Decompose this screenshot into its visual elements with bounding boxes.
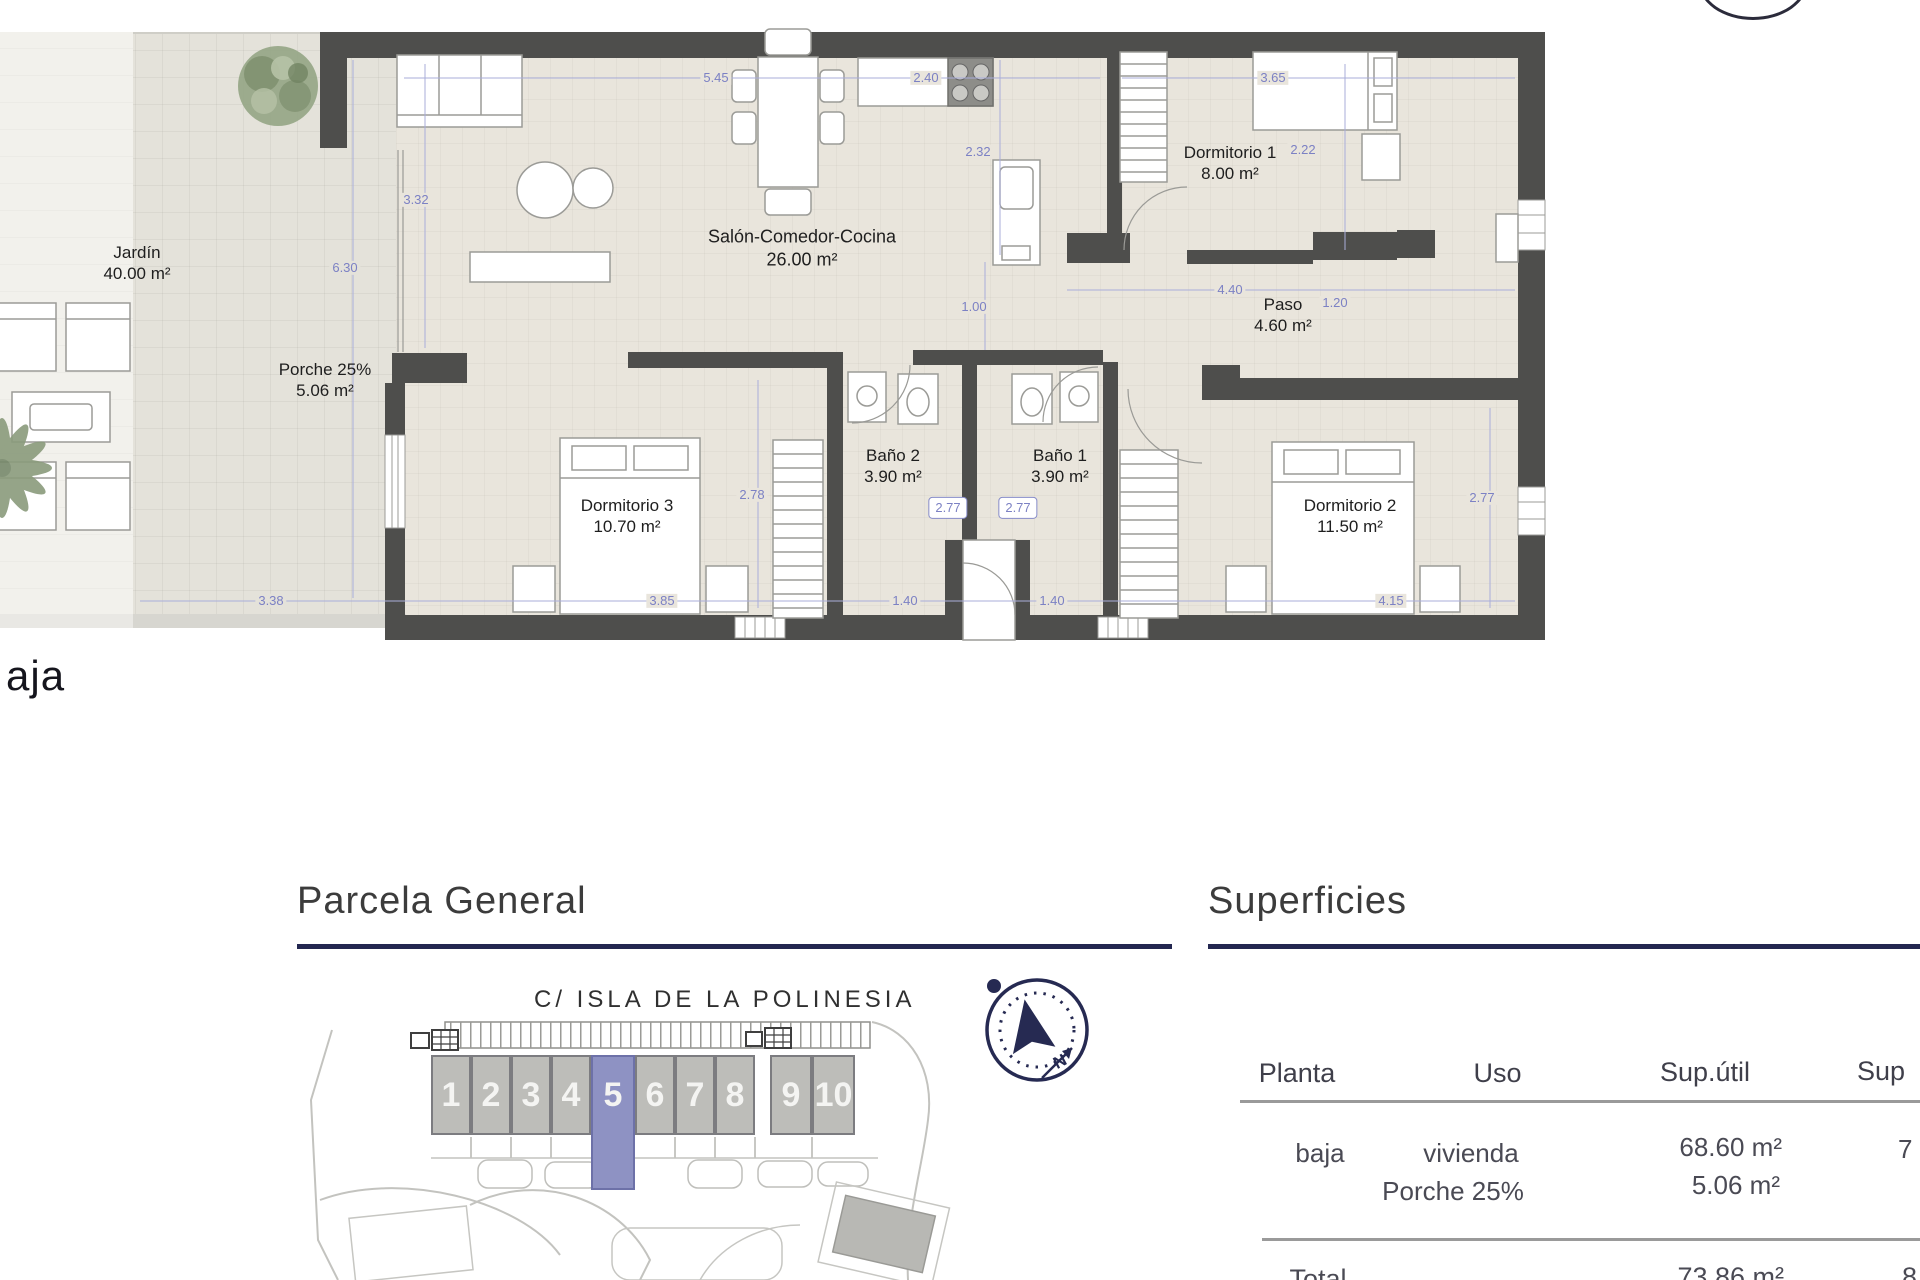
room-name: Dormitorio 1 <box>1184 143 1277 162</box>
col-header-planta: Planta <box>1240 1058 1354 1089</box>
dim-salon-depth: 3.32 <box>400 193 431 207</box>
dim-hall-width: 1.00 <box>958 300 989 314</box>
dim-dorm3-width: 3.85 <box>646 594 677 608</box>
driveways-cars <box>431 1137 878 1188</box>
dim-paso-width: 4.40 <box>1214 283 1245 297</box>
compass-icon <box>987 979 1087 1080</box>
room-label-salon: Salón-Comedor-Cocina 26.00 m² <box>708 226 896 271</box>
table-header-rule <box>1240 1100 1920 1103</box>
cell-planta-baja: baja <box>1270 1138 1370 1169</box>
dim-dorm1-depth: 2.22 <box>1287 143 1318 157</box>
room-area: 26.00 m² <box>766 249 837 269</box>
room-area: 8.00 m² <box>1201 164 1259 183</box>
room-name: Jardín <box>113 243 160 262</box>
room-area: 3.90 m² <box>864 467 922 486</box>
room-label-bano1: Baño 1 3.90 m² <box>1031 445 1089 488</box>
cell-total-label: Total <box>1268 1264 1368 1280</box>
room-name: Dormitorio 2 <box>1304 496 1397 515</box>
cell-total-sup-right-clipped: 8 <box>1902 1262 1920 1280</box>
floorplan-sheet: Jardín 40.00 m² Porche 25% 5.06 m² Salón… <box>0 0 1920 1280</box>
room-label-dormitorio3: Dormitorio 3 10.70 m² <box>581 495 674 538</box>
room-name: Porche 25% <box>279 360 372 379</box>
room-name: Baño 2 <box>866 446 920 465</box>
site-unit-3: 3 <box>511 1055 551 1135</box>
room-name: Dormitorio 3 <box>581 496 674 515</box>
superficies-rule <box>1208 944 1920 949</box>
room-area: 10.70 m² <box>593 517 660 536</box>
superficies-title: Superficies <box>1208 880 1407 923</box>
dim-dorm2-width: 4.15 <box>1375 594 1406 608</box>
cell-sup-right-clipped: 7 <box>1898 1134 1920 1165</box>
dim-bano1-width: 1.40 <box>1036 594 1067 608</box>
dim-dorm2-depth: 2.77 <box>1466 491 1497 505</box>
cell-uso-vivienda: vivienda <box>1398 1138 1544 1169</box>
cell-sup-util-porche: 5.06 m² <box>1632 1170 1780 1201</box>
room-area: 5.06 m² <box>296 381 354 400</box>
site-unit-2: 2 <box>471 1055 511 1135</box>
site-unit-9: 9 <box>770 1055 812 1135</box>
site-unit-10: 10 <box>812 1055 855 1135</box>
dim-kitchen-depth: 2.32 <box>962 145 993 159</box>
room-name: Salón-Comedor-Cocina <box>708 227 896 247</box>
room-label-paso: Paso 4.60 m² <box>1254 294 1312 337</box>
dim-bano2-width: 1.40 <box>889 594 920 608</box>
room-area: 11.50 m² <box>1317 517 1383 536</box>
dim-porch-length: 6.30 <box>329 261 360 275</box>
garden-furniture <box>0 303 406 628</box>
dim-bano2-box: 2.77 <box>928 497 967 519</box>
room-name: Baño 1 <box>1033 446 1087 465</box>
site-unit-7: 7 <box>675 1055 715 1135</box>
table-mid-rule <box>1262 1238 1920 1241</box>
room-label-bano2: Baño 2 3.90 m² <box>864 445 922 488</box>
room-area: 3.90 m² <box>1031 467 1089 486</box>
tree-icon <box>238 46 318 126</box>
col-header-uso: Uso <box>1450 1058 1545 1089</box>
floor-name-label: aja <box>6 652 65 700</box>
dim-garden-bottom: 3.38 <box>255 594 286 608</box>
street-parking-hatch <box>445 1022 870 1048</box>
dim-kitchen-width: 2.40 <box>910 71 941 85</box>
site-unit-1: 1 <box>431 1055 471 1135</box>
site-lower-shapes <box>349 1182 950 1280</box>
dim-salon-width: 5.45 <box>700 71 731 85</box>
dim-dorm1-width: 3.65 <box>1257 71 1288 85</box>
cell-total-sup-util: 73.86 m² <box>1632 1262 1784 1280</box>
site-unit-4: 4 <box>551 1055 591 1135</box>
room-label-dormitorio1: Dormitorio 1 8.00 m² <box>1184 142 1277 185</box>
room-label-porche: Porche 25% 5.06 m² <box>279 359 372 402</box>
site-unit-6: 6 <box>635 1055 675 1135</box>
cell-sup-util-vivienda: 68.60 m² <box>1632 1132 1782 1163</box>
dim-bano1-box: 2.77 <box>998 497 1037 519</box>
room-name: Paso <box>1264 295 1303 314</box>
room-label-jardin: Jardín 40.00 m² <box>103 242 170 285</box>
dim-dorm3-depth: 2.78 <box>736 488 767 502</box>
col-header-sup-util: Sup.útil <box>1630 1057 1780 1088</box>
room-area: 4.60 m² <box>1254 316 1312 335</box>
room-area: 40.00 m² <box>103 264 170 283</box>
site-unit-8: 8 <box>715 1055 755 1135</box>
dim-paso-right: 1.20 <box>1319 296 1350 310</box>
cell-uso-porche: Porche 25% <box>1380 1176 1526 1207</box>
floorplan-drawing <box>0 0 1920 700</box>
site-unit-5-highlighted: 5 <box>591 1055 635 1190</box>
room-label-dormitorio2: Dormitorio 2 11.50 m² <box>1304 495 1397 538</box>
col-header-sup-right-clipped: Sup <box>1857 1056 1920 1087</box>
